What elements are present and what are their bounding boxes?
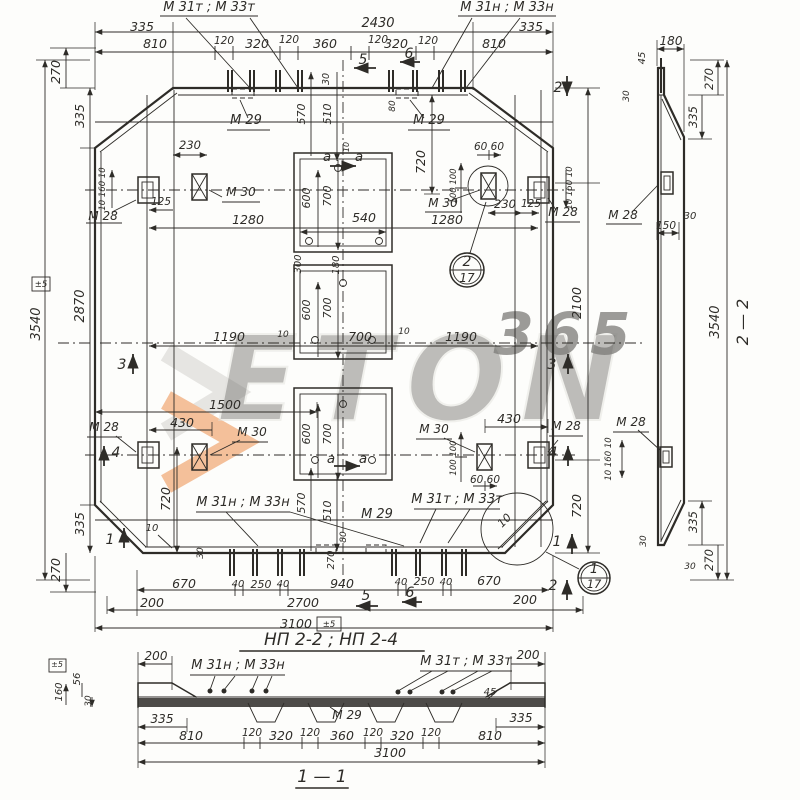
tol-3540: ±5 [35,280,48,290]
label-m28-s2-top: М 28 [608,208,638,222]
dim-150-s2-top: 150 [656,220,676,232]
marker-5-top: 5 [359,52,368,68]
dim-700-o1: 700 [321,186,334,207]
dim-30-s2-topleft: 30 [622,90,632,102]
label-m30-bot-right: М 30 [419,422,449,436]
dim-2700: 2700 [287,595,319,610]
dim-125-left: 125 [151,196,171,208]
dim-40-bl1: 40 [232,579,245,590]
sec-a-top-left: а [323,149,331,165]
dim-200-s1-left: 200 [145,649,168,663]
dim-3540-s2: 3540 [708,305,723,338]
marker-4-left: 4 [112,445,121,461]
dim-30-s1-left: 30 [84,695,94,707]
marker-3-right: 3 [548,357,557,373]
dim-10-160-10-left: 10 160 10 [98,167,108,210]
dim-10-bot-left: 10 [146,523,159,534]
dim-335-s2-top: 335 [686,106,700,128]
dim-1280-right: 1280 [431,212,463,227]
dim-510-top: 510 [321,104,334,125]
dim-320-s1-right: 320 [390,728,414,743]
tol-3100: ±5 [323,620,336,630]
dim-100-100-top-right: 100 100 [449,168,459,203]
dim-40-br2: 40 [440,577,453,588]
callout-2-num: 2 [463,254,472,270]
dim-335-s1-left: 335 [151,712,174,726]
dim-810-top-left: 810 [143,36,167,51]
dim-45-s1: 45 [484,687,497,698]
dim-720-bot-left: 720 [158,487,173,511]
dim-120-s1-4: 120 [421,727,441,739]
dim-600-o3: 600 [300,424,313,445]
dim-60-60-top-right: 60 60 [474,141,504,153]
dim-120-top-4: 120 [418,35,438,47]
dim-30-s2-mid: 30 [684,211,697,222]
label-bars-bot-left: М 31н ; М 33н [196,495,290,510]
dim-1190-right: 1190 [445,329,477,344]
label-m30-top-left: М 30 [226,185,256,199]
marker-5-bot: 5 [362,588,371,604]
title-plan: НП 2-2 ; НП 2-4 [264,630,398,650]
dim-200-s1-right: 200 [517,648,540,662]
dim-10-160-10-right: 10 160 10 [565,166,575,209]
section-1-1-rebar-dots [208,689,456,695]
dim-570-top: 570 [295,104,308,125]
marker-4-right: 4 [549,445,558,461]
dim-270-left-bottom: 270 [48,558,63,582]
dim-700-mid: 700 [348,329,372,344]
dim-320-top-left: 320 [245,36,269,51]
marker-1-right: 1 [553,534,562,550]
callout-1-num: 1 [590,562,598,577]
dim-335-s2-bot: 335 [686,511,700,533]
dim-430-bot-right: 430 [497,411,521,426]
dim-30-s2-bot: 30 [684,562,696,572]
dim-430-bot-left: 430 [170,415,194,430]
dim-180-o2: 180 [331,255,342,274]
dim-810-s1-right: 810 [478,728,502,743]
dim-670-bot-right: 670 [477,573,501,588]
dim-160-s1: 160 [54,682,65,701]
top-left-bars-label: М 31т ; М 33т [163,0,255,15]
dim-3100-s1: 3100 [374,745,406,760]
dim-600-o2: 600 [300,300,313,321]
dim-30-top: 30 [321,73,332,85]
dim-720-top-center: 720 [413,150,428,174]
label-bars-bot-right: М 31т ; М 33т [411,492,503,507]
dim-3100-plan: 3100 [280,616,312,631]
label-m29-bot: М 29 [361,507,393,522]
dim-270-left-top: 270 [48,60,63,84]
dim-230-top-right: 230 [494,197,516,211]
dim-320-s1-left: 320 [269,728,293,743]
dim-335-top-right: 335 [519,19,543,34]
label-m29-s1: М 29 [332,708,361,722]
section-2-2-anchor-m28-top [661,172,673,194]
dim-1280-left: 1280 [232,212,264,227]
dim-270-s2-top: 270 [702,68,716,90]
dim-120-s1-3: 120 [363,727,383,739]
label-m28-bot-left: М 28 [89,420,119,434]
dim-360-s1: 360 [330,728,354,743]
dim-45-s2: 45 [637,52,648,65]
dim-10-mid-right: 10 [398,327,410,337]
dim-180-s2: 180 [660,34,683,48]
sec-a-top-right: а [355,149,363,165]
dim-30-bot-left: 30 [196,547,206,559]
dim-570-bot: 570 [295,493,308,514]
dim-120-s1-2: 120 [300,727,320,739]
label-m29-top-left: М 29 [230,113,262,128]
title-section2: 2 — 2 [733,299,752,346]
dim-230-top-left: 230 [179,138,201,152]
dim-2870-left: 2870 [73,289,88,322]
label-bars-s1-right: М 31т ; М 33т [420,654,512,669]
dim-670-bot-left: 670 [172,576,196,591]
dim-3540-left: 3540 [29,307,44,340]
dim-10-o1: 10 [342,142,351,152]
dim-360-top: 360 [313,36,337,51]
dim-250-bot-right: 250 [414,575,435,588]
dim-80-bot: 80 [339,531,349,543]
marker-6-bot: 6 [406,585,415,601]
blueprint-sheet: ETON365 [0,0,800,800]
dim-2430: 2430 [361,16,394,31]
dim-1500: 1500 [209,397,241,412]
anchor-m30-top-left [192,174,207,200]
dim-510-bot: 510 [321,501,334,522]
tol-160-s1: ±5 [51,660,63,669]
label-m29-top-right: М 29 [413,113,445,128]
dim-120-s1-1: 120 [242,727,262,739]
dim-120-top-2: 120 [279,34,299,46]
dim-335-left-top: 335 [72,104,87,128]
callout-2-sheet: 17 [459,271,475,285]
dim-10-mid-left: 10 [277,330,289,340]
dim-56-s1: 56 [72,673,83,686]
dim-250-bot-left: 250 [251,578,272,591]
section-2-2-anchor-m28-bottom [660,447,672,467]
dim-270-bot: 270 [326,550,337,569]
dim-810-top-right: 810 [482,36,506,51]
blueprint-drawing: ETON365 [0,0,800,800]
top-right-bars-label: М 31н ; М 33н [460,0,554,15]
dim-1190-left: 1190 [213,329,245,344]
section-2-2-outline [658,68,684,545]
label-m30-bot-left: М 30 [237,425,267,439]
dim-700-o2-v: 700 [321,298,334,319]
dim-125-right: 125 [521,198,541,210]
marker-2-top: 2 [554,80,563,96]
dim-40-bl2: 40 [277,579,290,590]
dim-60-60-bot-right: 60 60 [470,474,500,486]
dim-335-s1-right: 335 [510,711,533,725]
label-m28-top-left: М 28 [88,209,118,223]
dim-2100-right: 2100 [569,287,584,319]
dim-300-o2: 300 [293,254,304,273]
dim-200-bot-right: 200 [513,592,537,607]
sec-a-bot-left: а [327,451,335,467]
dim-600-o1: 600 [300,188,313,209]
dim-810-s1-left: 810 [179,728,203,743]
sec-a-bot-right: а [359,451,367,467]
marker-6-top: 6 [405,46,414,62]
dim-270-s2-bot: 270 [702,549,716,571]
dim-200-bot-left: 200 [140,595,164,610]
dim-540-o1: 540 [352,210,376,225]
label-leaders [86,16,583,548]
dim-80-top: 80 [388,100,398,112]
marker-1-left: 1 [106,532,115,548]
section-1-1-slab [138,698,545,707]
dim-720-bot-right: 720 [569,494,584,518]
marker-2-bot: 2 [549,578,558,594]
dim-120-top-1: 120 [214,35,234,47]
dim-940: 940 [330,576,354,591]
dim-30-s2-botleft: 30 [639,535,649,547]
dim-335-left-bottom: 335 [72,512,87,536]
detail-10: 10 [495,511,514,530]
dim-335-top-left: 335 [130,19,154,34]
dim-10-160-10-s2: 10 160 10 [604,437,614,480]
label-bars-s1-left: М 31н ; М 33н [191,658,285,673]
dim-700-o3: 700 [321,424,334,445]
label-m28-s2-bot: М 28 [616,415,646,429]
callout-1-sheet: 17 [587,577,602,591]
dim-100-100-bot-right: 100 100 [449,440,459,475]
title-section1: 1 — 1 [297,767,346,787]
label-m28-bot-right: М 28 [551,419,581,433]
marker-3-left: 3 [118,357,127,373]
